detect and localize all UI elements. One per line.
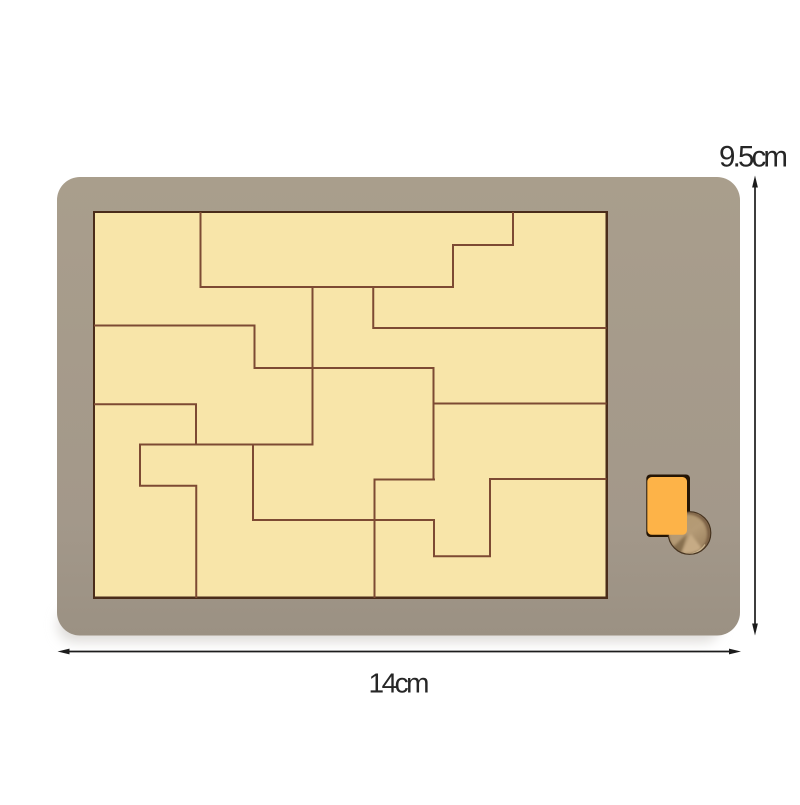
svg-text:14cm: 14cm	[369, 668, 430, 699]
svg-text:9.5cm: 9.5cm	[719, 140, 788, 173]
